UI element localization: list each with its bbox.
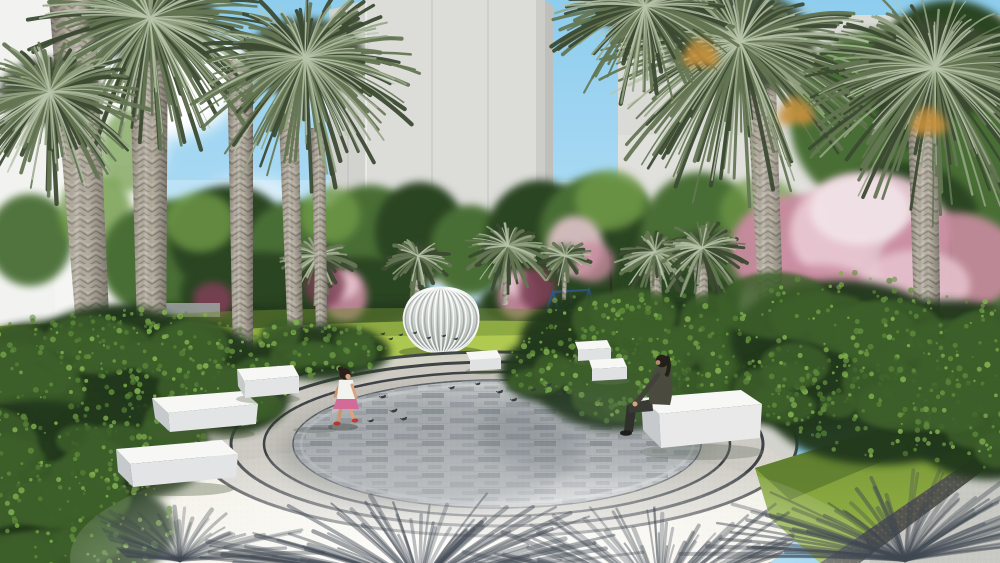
bench-wedge-left-lower xyxy=(116,440,238,496)
landscape-render xyxy=(0,0,1000,563)
bench-cube-right-b xyxy=(589,358,630,385)
bench-box-upper-left xyxy=(236,365,300,404)
park-rendering xyxy=(0,0,1000,563)
bench-cube-lawn xyxy=(466,350,502,375)
